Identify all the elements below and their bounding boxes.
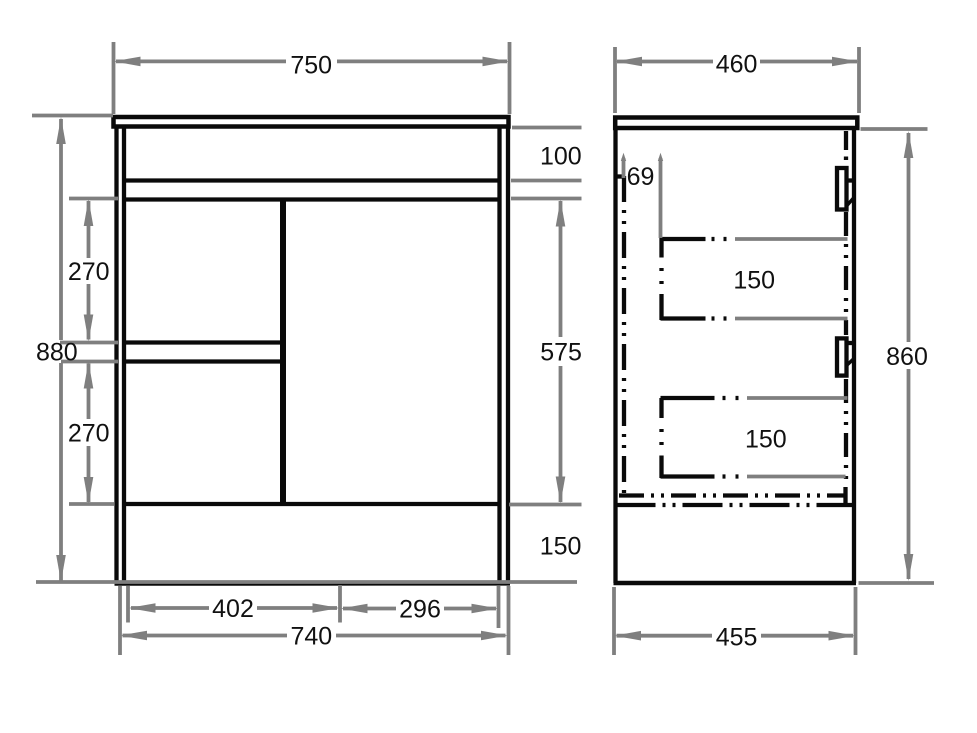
svg-text:455: 455 — [716, 624, 758, 652]
svg-text:296: 296 — [399, 596, 441, 624]
svg-text:69: 69 — [627, 163, 655, 191]
svg-text:460: 460 — [716, 51, 758, 79]
svg-text:270: 270 — [68, 420, 110, 448]
svg-text:402: 402 — [212, 595, 254, 623]
svg-text:860: 860 — [886, 343, 928, 371]
svg-text:270: 270 — [68, 258, 110, 286]
svg-text:750: 750 — [290, 51, 332, 79]
svg-text:575: 575 — [540, 339, 582, 367]
svg-text:880: 880 — [36, 339, 78, 367]
svg-text:150: 150 — [745, 425, 787, 453]
svg-text:740: 740 — [290, 623, 332, 651]
svg-text:150: 150 — [733, 266, 775, 294]
svg-text:150: 150 — [540, 532, 582, 560]
svg-text:100: 100 — [540, 142, 582, 170]
